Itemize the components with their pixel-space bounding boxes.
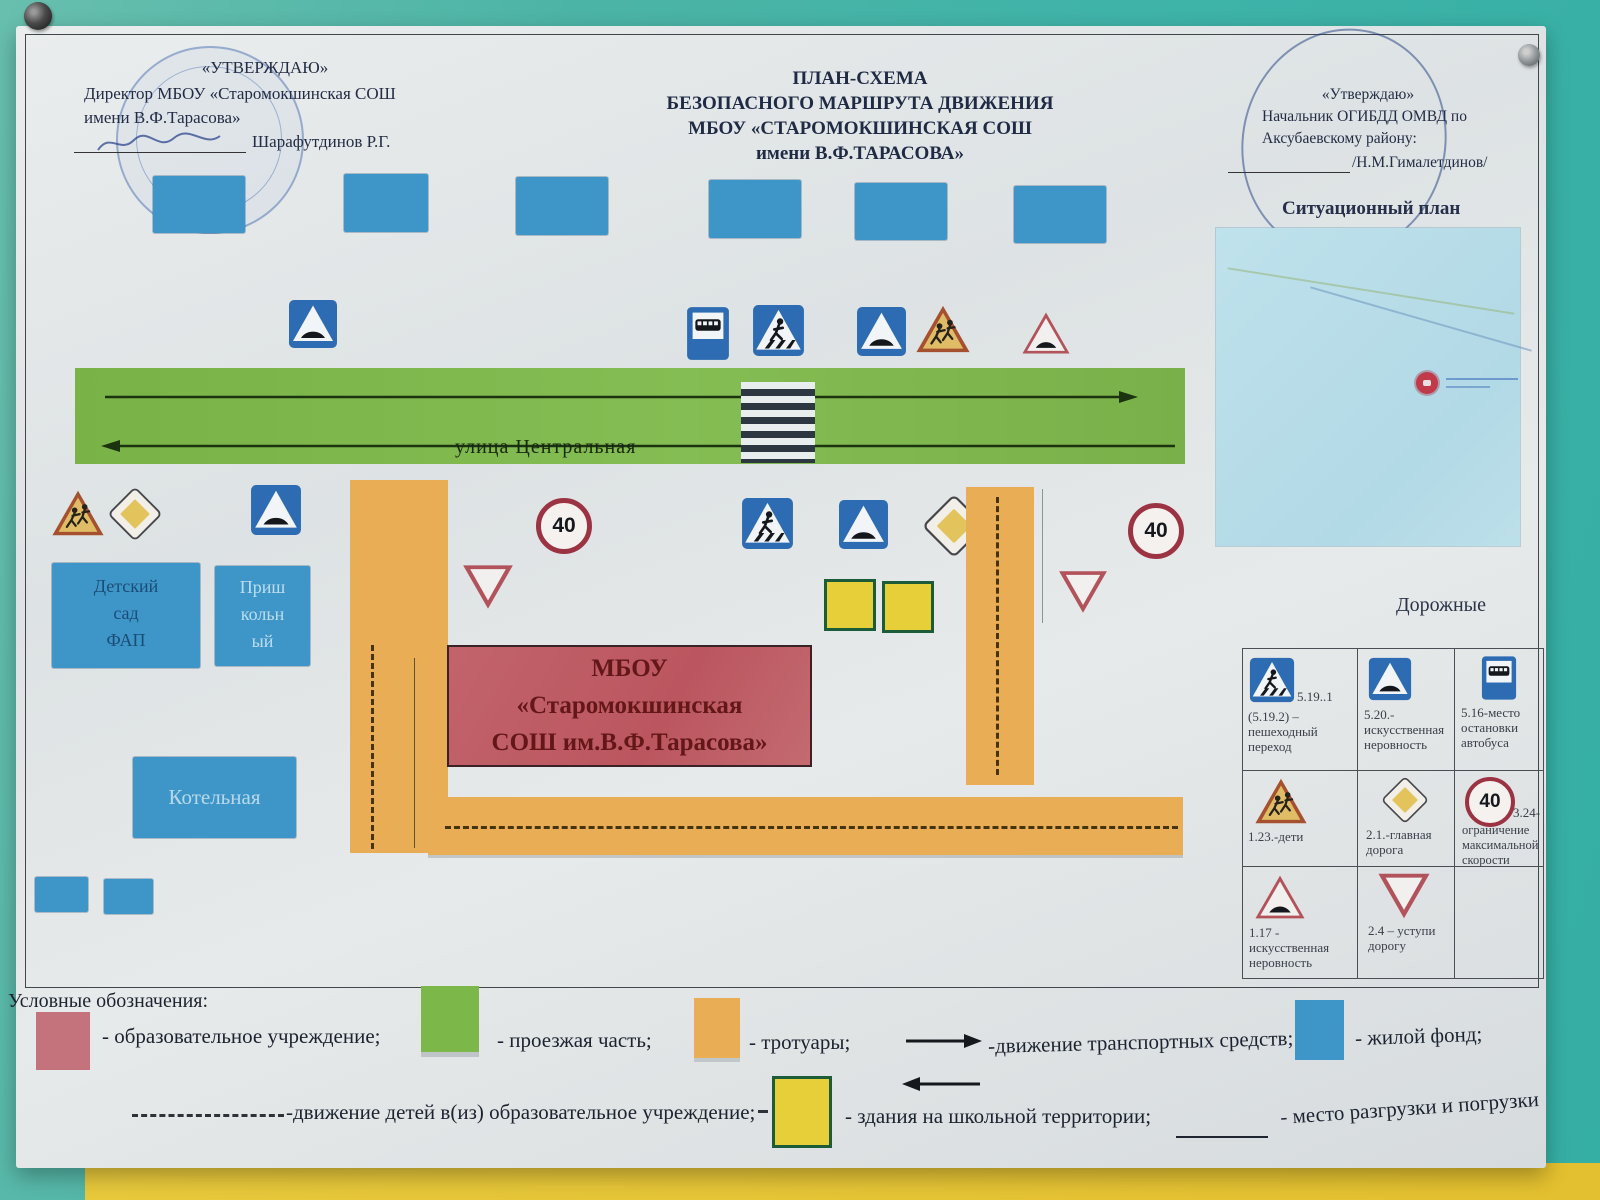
legend-dash-mark (758, 1110, 768, 1113)
kindergarten-label: ФАП (52, 627, 200, 654)
residential-block (855, 183, 947, 240)
priority-road-icon (104, 483, 166, 545)
residential-block (1014, 186, 1106, 243)
signature-scribble (92, 126, 242, 158)
legend-traffic-arrows (900, 1030, 986, 1094)
signs-table-title: Дорожные (1396, 594, 1486, 617)
sidewalk-right-vertical (966, 487, 1034, 785)
residential-block-small (35, 877, 88, 912)
title-line3: МБОУ «СТАРОМОКШИНСКАЯ СОШ (610, 116, 1110, 141)
speed-limit-40-icon: 40 (1128, 503, 1184, 559)
title-line2: БЕЗОПАСНОГО МАРШРУТА ДВИЖЕНИЯ (610, 91, 1110, 116)
legend-swatch-road (421, 986, 479, 1052)
boiler-house-building: Котельная (133, 757, 296, 838)
legend-children-route-dashes (132, 1114, 284, 1117)
situational-plan-title: Ситуационный план (1282, 198, 1460, 220)
residential-block (709, 180, 801, 238)
street-label: улица Центральная (455, 436, 636, 459)
children-route-dashed (445, 826, 1178, 829)
kindergarten-label: сад (52, 600, 200, 627)
location-pin-icon (1416, 372, 1438, 394)
signature-line (74, 152, 246, 153)
speed-bump-info-icon (856, 306, 907, 357)
yield-icon (1376, 871, 1432, 921)
photo-of-route-poster: «УТВЕРЖДАЮ» Директор МБОУ «Старомокшинск… (0, 0, 1600, 1200)
legend-heading: Условные обозначения: (8, 990, 208, 1013)
map-label-smudge (1446, 378, 1518, 380)
wall-yellow-strip (85, 1163, 1600, 1200)
sign-label: 1.17 - искусственная неровность (1249, 925, 1349, 970)
legend-school-buildings-label: - здания на школьной территории; (845, 1104, 1151, 1129)
speed-limit-value: 40 (1479, 791, 1500, 813)
speed-bump-info-icon (288, 299, 338, 349)
legend-housing-label: - жилой фонд; (1355, 1022, 1483, 1051)
pedestrian-crossing-icon (1249, 657, 1295, 703)
legend-education-label: - образовательное учреждение; (102, 1024, 381, 1049)
school-label-line3: СОШ им.В.Ф.Тарасова» (449, 724, 810, 761)
kindergarten-building: Детский сад ФАП (52, 563, 200, 668)
pedestrian-crossing-icon (752, 304, 805, 357)
map-road-line (1228, 267, 1515, 314)
loading-place-line (414, 658, 415, 848)
children-route-dashed (371, 645, 374, 849)
page-title: ПЛАН-СХЕМА БЕЗОПАСНОГО МАРШРУТА ДВИЖЕНИЯ… (610, 66, 1110, 166)
title-line1: ПЛАН-СХЕМА (610, 66, 1110, 91)
priority-road-icon (1378, 773, 1432, 827)
map-label-smudge (1446, 386, 1490, 388)
title-line4: имени В.Ф.ТАРАСОВА» (610, 141, 1110, 166)
legend-swatch-housing (1295, 1000, 1344, 1060)
speed-bump-warning-icon (1020, 310, 1072, 356)
speed-bump-warning-icon (1253, 873, 1307, 921)
sign-code: 3.24- (1513, 805, 1540, 820)
sign-label: 2.4 – уступи дорогу (1368, 923, 1448, 953)
sign-label: 5.20.- искусственная неровность (1364, 707, 1450, 752)
pushpin-icon (1518, 44, 1540, 66)
situational-plan-map (1216, 228, 1520, 546)
school-territory-building (824, 579, 876, 631)
approve-left-line3: имени В.Ф.Тарасова» (84, 108, 241, 128)
sign-label: 2.1.-главная дорога (1366, 827, 1450, 857)
speed-limit-40-icon: 40 (1465, 777, 1515, 827)
bus-stop-icon (1481, 655, 1517, 701)
approve-left-line2: Директор МБОУ «Старомокшинская СОШ (84, 84, 396, 104)
sign-label: (5.19.2) – пешеходный переход (1248, 709, 1352, 754)
school-territory-building (882, 581, 934, 633)
legend-swatch-sidewalk (694, 998, 740, 1058)
kindergarten-label: Детский (52, 573, 200, 600)
sign-label: ограничение максимальной скорости (1462, 823, 1542, 868)
children-warning-icon (1253, 776, 1309, 826)
empty-cell (1455, 867, 1544, 979)
school-annex-building: Приш кольн ый (215, 566, 310, 666)
legend-swatch-education (36, 1012, 90, 1070)
pushpin-icon (24, 2, 52, 30)
school-label-line2: «Старомокшинская (449, 687, 810, 724)
loading-place-line (1042, 489, 1043, 623)
annex-label: ый (215, 628, 310, 655)
speed-bump-info-icon (1368, 657, 1412, 701)
director-name: Шарафутдинов Р.Г. (252, 132, 390, 152)
residential-block-small (104, 879, 153, 914)
residential-block (516, 177, 608, 235)
annex-label: Приш (215, 574, 310, 601)
bus-stop-icon (686, 306, 730, 361)
annex-label: кольн (215, 601, 310, 628)
school-building: МБОУ «Старомокшинская СОШ им.В.Ф.Тарасов… (447, 645, 812, 767)
legend-loading-line (1176, 1136, 1268, 1138)
legend-sidewalk-label: - тротуары; (749, 1030, 850, 1055)
speed-bump-info-icon (838, 499, 889, 550)
speed-bump-info-icon (250, 484, 302, 536)
speed-limit-value: 40 (1144, 519, 1167, 543)
yield-icon (461, 562, 515, 612)
residential-block (344, 174, 428, 232)
speed-limit-value: 40 (552, 514, 575, 538)
sign-code: 5.19..1 (1297, 689, 1333, 704)
approve-left-title: «УТВЕРЖДАЮ» (150, 58, 380, 78)
boiler-house-label: Котельная (169, 785, 261, 810)
children-warning-icon (914, 303, 972, 355)
pedestrian-crossing-icon (741, 497, 794, 550)
children-route-dashed (996, 497, 999, 775)
legend-swatch-school-buildings (772, 1076, 832, 1148)
sign-label: 1.23.-дети (1248, 829, 1352, 844)
yield-icon (1057, 568, 1109, 616)
school-label-line1: МБОУ (449, 650, 810, 687)
legend-road-label: - проезжая часть; (497, 1028, 652, 1053)
residential-block (153, 176, 245, 233)
children-warning-icon (50, 488, 106, 538)
zebra-crossing-icon (741, 382, 815, 463)
road-signs-legend-table: 5.19..1 (5.19.2) – пешеходный переход 5.… (1242, 648, 1544, 979)
speed-limit-40-icon: 40 (536, 498, 592, 554)
sign-label: 5.16-место остановки автобуса (1461, 705, 1539, 750)
legend-children-label: -движение детей в(из) образовательное уч… (286, 1100, 755, 1125)
map-road-line (1310, 286, 1532, 351)
